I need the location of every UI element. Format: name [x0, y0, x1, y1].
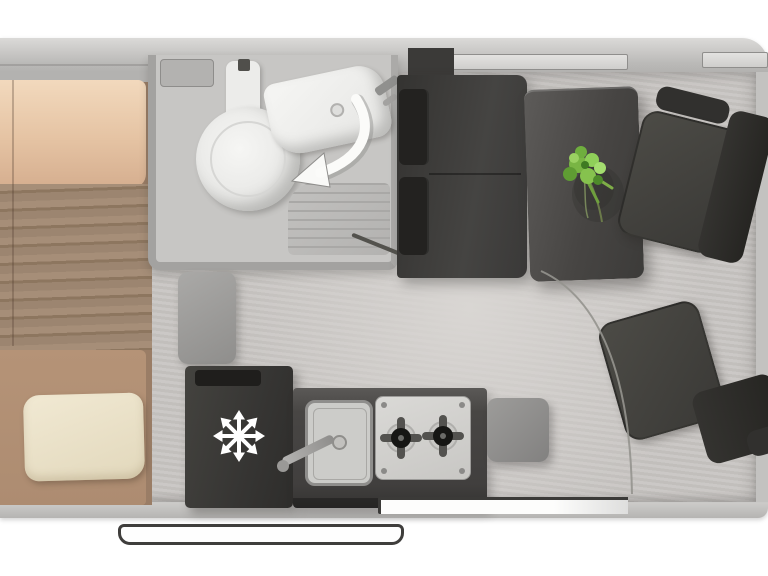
screw	[459, 468, 465, 474]
screw	[381, 402, 387, 408]
gas-hob	[375, 396, 471, 480]
burner-jet	[398, 435, 404, 441]
side-window	[450, 54, 628, 70]
snowflake-icon	[211, 408, 267, 464]
screw	[459, 402, 465, 408]
sliding-door-opening	[378, 497, 628, 514]
screw	[381, 468, 387, 474]
fridge-vent	[195, 370, 261, 386]
bed	[0, 72, 152, 505]
bathroom-shelf	[160, 59, 214, 87]
hob-burner	[424, 417, 462, 455]
toilet-flush-knob	[238, 59, 250, 71]
worktop-extension	[487, 398, 549, 462]
kitchen-counter	[293, 388, 487, 508]
entry-step	[118, 524, 404, 545]
bed-seam-line	[12, 80, 14, 346]
hob-burner	[382, 419, 420, 457]
sink-drain	[332, 435, 347, 450]
floorplan-image	[0, 0, 768, 576]
travel-bench-seat	[397, 75, 527, 278]
cab-window	[702, 52, 768, 68]
tap-knob	[277, 460, 289, 472]
headrest	[399, 177, 429, 255]
bed-blanket	[0, 184, 152, 350]
burner-jet	[440, 433, 446, 439]
bench-seam	[429, 173, 521, 175]
headrest	[399, 89, 429, 165]
bathroom	[148, 55, 398, 270]
swivel-arrow-icon	[266, 91, 396, 211]
bed-duvet	[0, 80, 146, 188]
fridge	[185, 366, 293, 508]
tall-cabinet	[408, 48, 454, 75]
step-pouf	[178, 272, 236, 364]
pillow	[23, 392, 145, 481]
